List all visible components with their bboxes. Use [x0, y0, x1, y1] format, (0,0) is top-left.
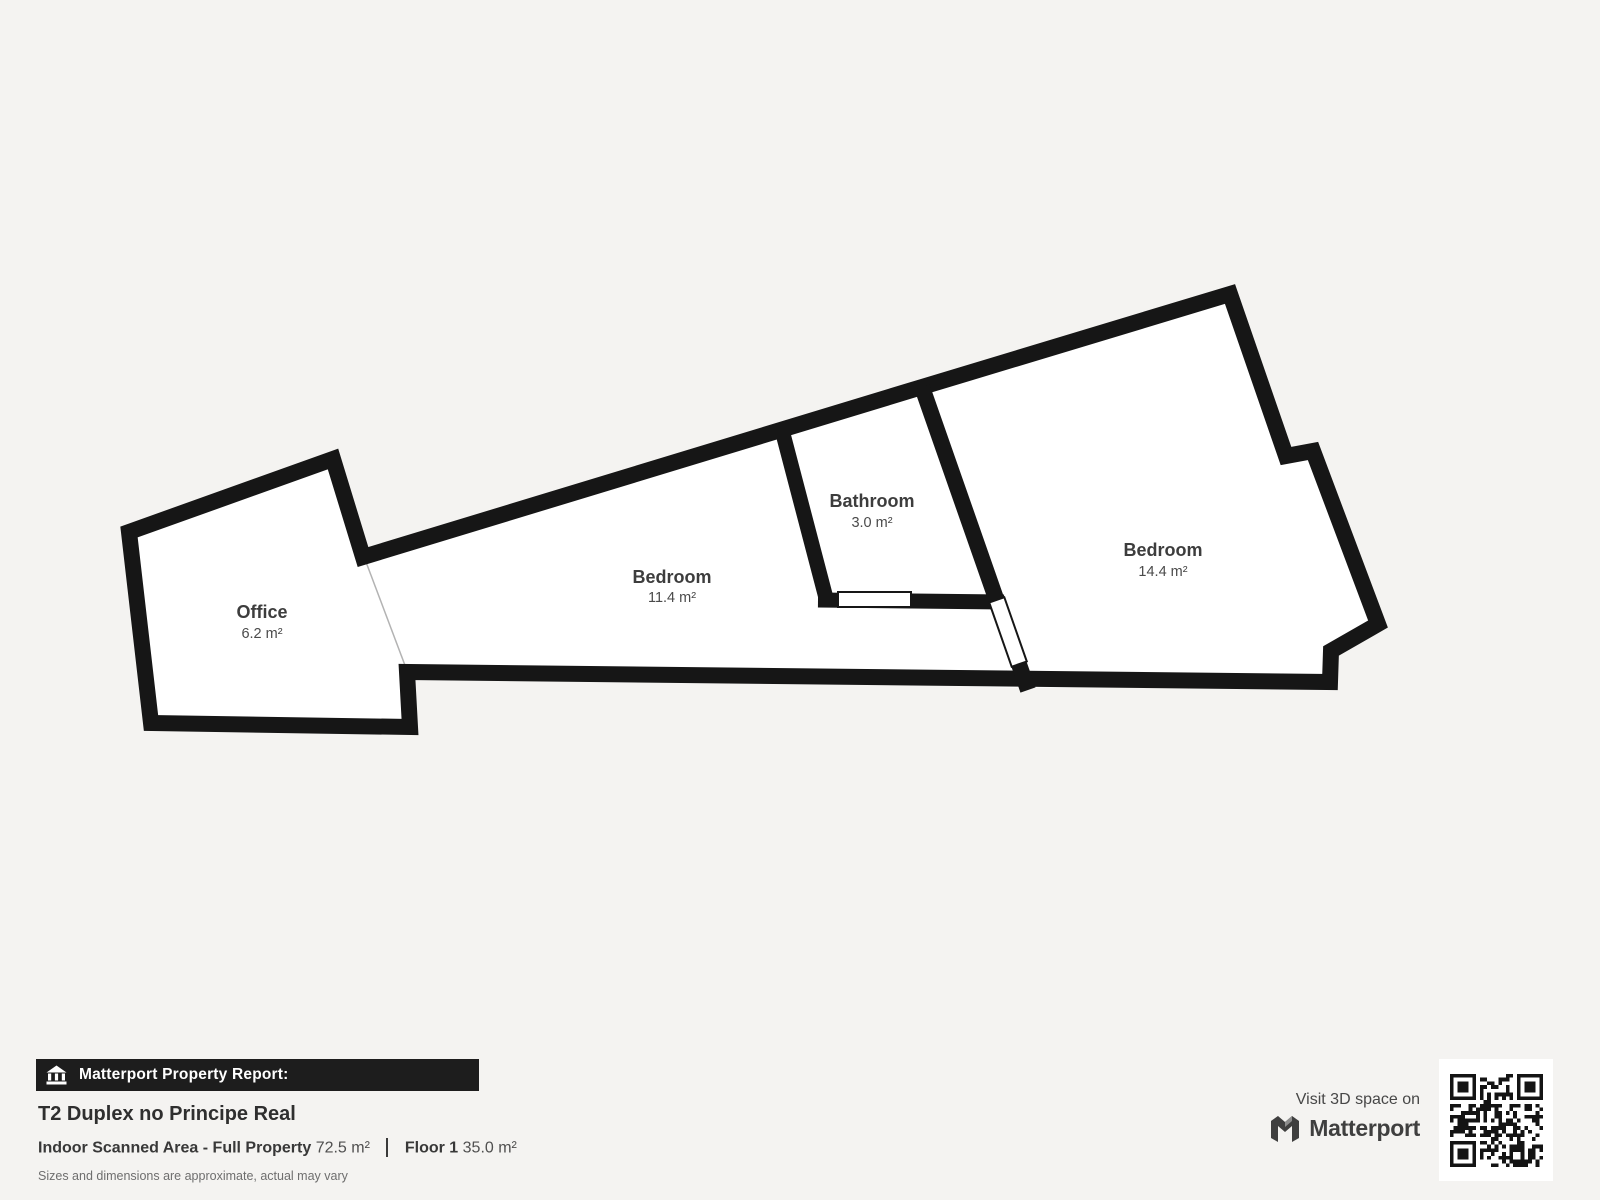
- scanned-area-label: Indoor Scanned Area - Full Property: [38, 1140, 311, 1157]
- report-info-line: Indoor Scanned Area - Full Property 72.5…: [38, 1139, 517, 1158]
- report-header-label: Matterport Property Report:: [79, 1066, 289, 1084]
- room-bedroom-middle: [363, 387, 1028, 688]
- room-label-bedroom-right: Bedroom: [1123, 540, 1202, 560]
- floor-value: 35.0 m²: [463, 1140, 517, 1157]
- room-label-bedroom-middle: Bedroom: [632, 567, 711, 587]
- house-icon: [46, 1065, 67, 1086]
- matterport-logo-icon: [1269, 1114, 1301, 1143]
- matterport-wordmark: Matterport: [1309, 1117, 1420, 1140]
- room-label-bathroom: Bathroom: [830, 491, 915, 511]
- floor-label: Floor 1: [405, 1140, 458, 1157]
- info-divider: [386, 1138, 388, 1157]
- room-area-bedroom-middle: 11.4 m²: [648, 590, 696, 606]
- visit-3d-space-text: Visit 3D space on: [1296, 1092, 1420, 1108]
- qr-code: [1439, 1059, 1553, 1181]
- room-label-office: Office: [236, 602, 287, 622]
- qr-code-pattern: [1450, 1074, 1543, 1167]
- report-header-bar: Matterport Property Report:: [36, 1059, 479, 1091]
- matterport-brand-link[interactable]: Matterport: [1269, 1114, 1420, 1143]
- room-area-bedroom-right: 14.4 m²: [1138, 564, 1187, 580]
- bathroom-door: [838, 592, 911, 607]
- scanned-area-value: 72.5 m²: [316, 1140, 370, 1157]
- room-area-office: 6.2 m²: [241, 626, 282, 642]
- matterport-floorplan-report: { "floorplan": { "rooms": [ {"name": "Of…: [0, 0, 1600, 1200]
- room-area-bathroom: 3.0 m²: [851, 515, 892, 531]
- floor-plan: Office 6.2 m² Bedroom 11.4 m² Bathroom 3…: [0, 0, 1600, 1200]
- report-title: T2 Duplex no Principe Real: [38, 1104, 296, 1124]
- room-office: [129, 459, 410, 727]
- report-disclaimer: Sizes and dimensions are approximate, ac…: [38, 1168, 348, 1184]
